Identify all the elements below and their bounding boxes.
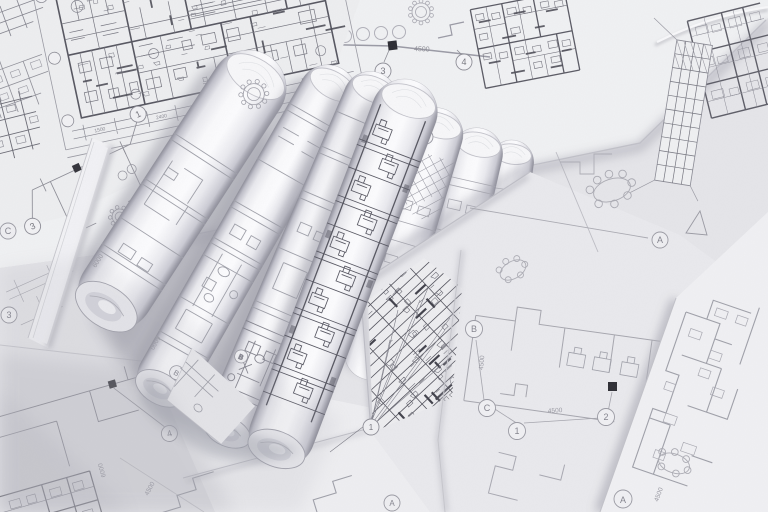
svg-text:B: B — [471, 324, 477, 334]
svg-text:C: C — [484, 403, 491, 413]
svg-text:A: A — [657, 235, 663, 245]
svg-text:C: C — [5, 226, 12, 236]
svg-text:4500: 4500 — [478, 355, 486, 370]
svg-text:A: A — [389, 499, 395, 508]
svg-text:A: A — [620, 495, 626, 505]
svg-text:1: 1 — [369, 423, 374, 432]
svg-text:2: 2 — [603, 412, 608, 422]
svg-text:4: 4 — [461, 57, 466, 67]
svg-text:4500: 4500 — [414, 46, 430, 54]
svg-text:1: 1 — [514, 426, 519, 436]
svg-text:4500: 4500 — [548, 407, 563, 415]
